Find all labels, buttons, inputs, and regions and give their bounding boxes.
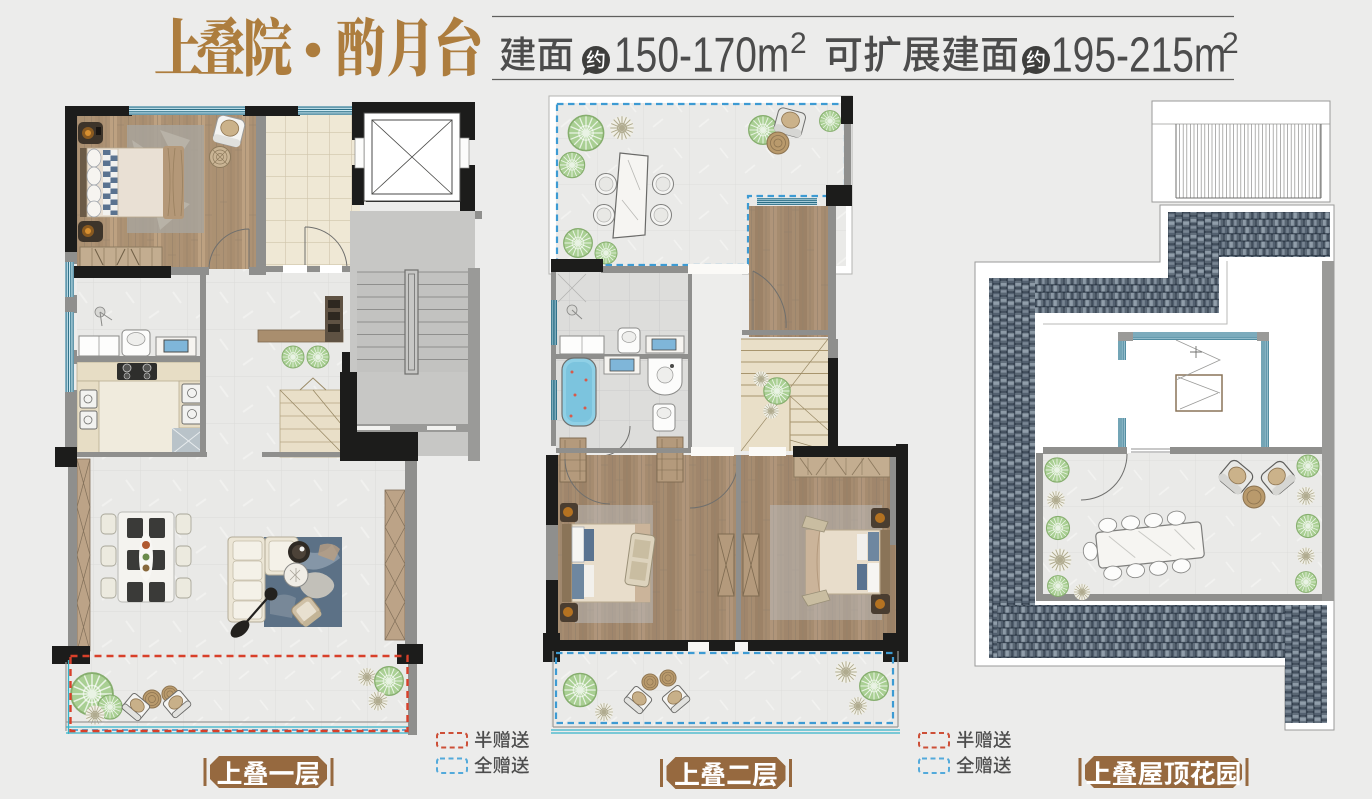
svg-text:150-170m: 150-170m (614, 28, 789, 82)
svg-text:195-215m: 195-215m (1051, 28, 1226, 82)
svg-text:2: 2 (790, 27, 807, 60)
svg-text:2: 2 (1222, 27, 1239, 60)
